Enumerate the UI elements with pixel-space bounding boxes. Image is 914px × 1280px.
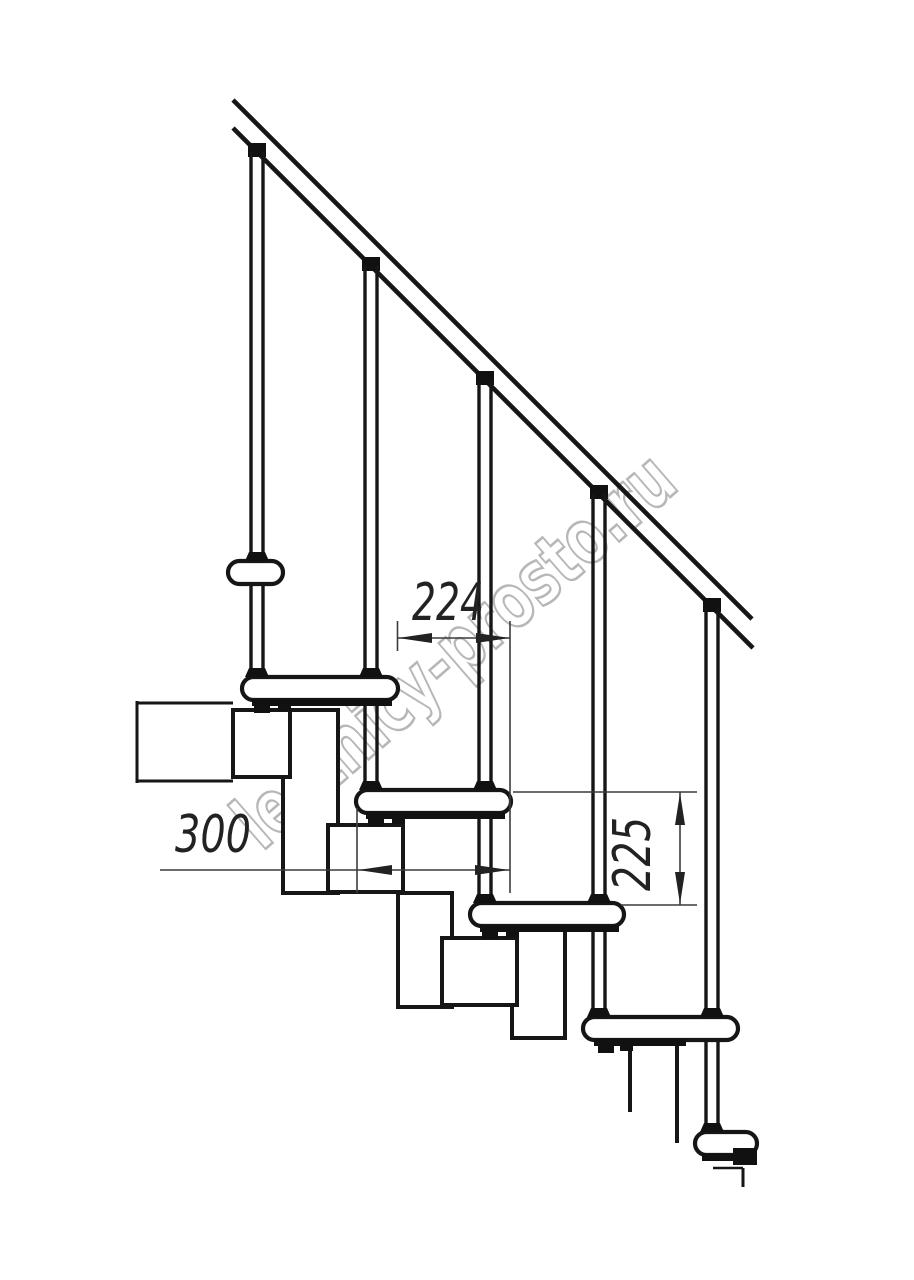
module-box (233, 710, 290, 777)
module-box (328, 825, 403, 892)
tread-depth-dimension-label: 300 (175, 805, 251, 865)
rise-dimension-label: 225 (603, 817, 663, 891)
baluster (706, 607, 718, 1132)
module-box (512, 930, 565, 1038)
staircase-drawing-page: lestnicy-prosto.ru (0, 0, 914, 1280)
tread (356, 790, 511, 813)
baluster (251, 152, 263, 677)
module-box (442, 938, 517, 1005)
tread (470, 903, 624, 926)
tread (228, 561, 283, 584)
lower-floor-step (733, 1148, 757, 1165)
staircase-drawing: lestnicy-prosto.ru (0, 0, 914, 1280)
tread (242, 677, 398, 700)
tread (583, 1017, 738, 1040)
lower-floor-edge (713, 1168, 743, 1187)
going-dimension-label: 224 (412, 573, 484, 633)
upper-floor-slab (137, 701, 233, 783)
